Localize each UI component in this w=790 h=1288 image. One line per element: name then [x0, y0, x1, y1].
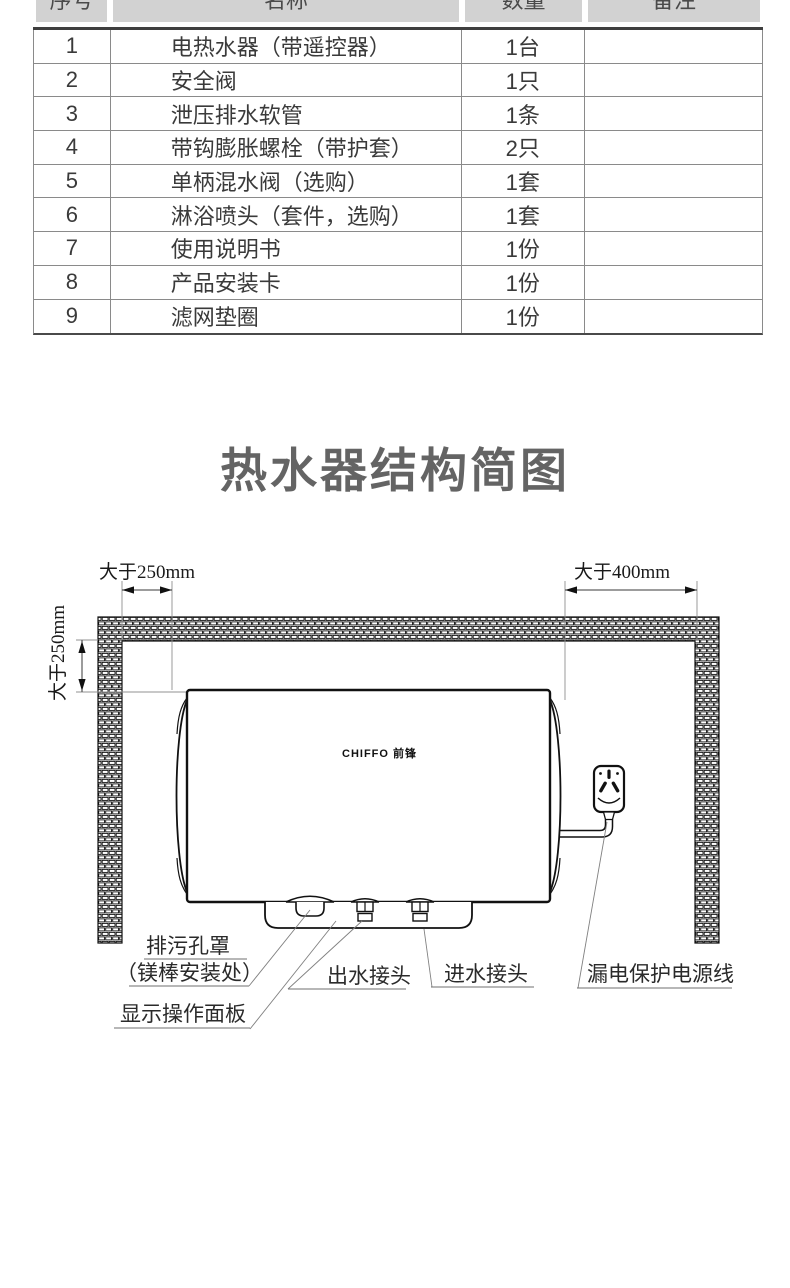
display-panel-label: 显示操作面板	[120, 1002, 246, 1026]
structure-diagram: 大于250mm 大于250mm 大于400mm	[0, 0, 790, 1288]
inlet-label: 进水接头	[444, 962, 528, 986]
diagram-labels: 排污孔罩 （镁棒安装处） 显示操作面板 出水接头 进水接头 漏电保护电源线	[114, 934, 734, 1028]
manual-page: 序号 名称 数量 备注 1 电热水器（带遥控器） 1台 2 安全阀 1只 3 泄…	[0, 0, 790, 1288]
dim-left-vertical-label: 大于250mm	[47, 605, 69, 701]
dimension-arrow	[160, 586, 172, 593]
water-heater-body: CHIFFO 前锋	[177, 690, 561, 928]
dimension-arrow	[78, 641, 85, 653]
dimension-arrow	[685, 586, 697, 593]
power-plug-icon	[594, 766, 624, 820]
dimension-arrow	[78, 679, 85, 691]
drain-label-line1: 排污孔罩	[146, 934, 230, 958]
dim-top-right-label: 大于400mm	[574, 561, 670, 583]
dimension-arrow	[122, 586, 134, 593]
dimension-arrow	[565, 586, 577, 593]
leader-inlet	[424, 929, 432, 987]
outlet-label: 出水接头	[327, 964, 411, 988]
power-cord-label: 漏电保护电源线	[587, 962, 734, 986]
brand-logo: CHIFFO 前锋	[342, 746, 417, 760]
dim-top-left-label: 大于250mm	[99, 561, 195, 583]
drain-label-line2: （镁棒安装处）	[116, 961, 263, 985]
